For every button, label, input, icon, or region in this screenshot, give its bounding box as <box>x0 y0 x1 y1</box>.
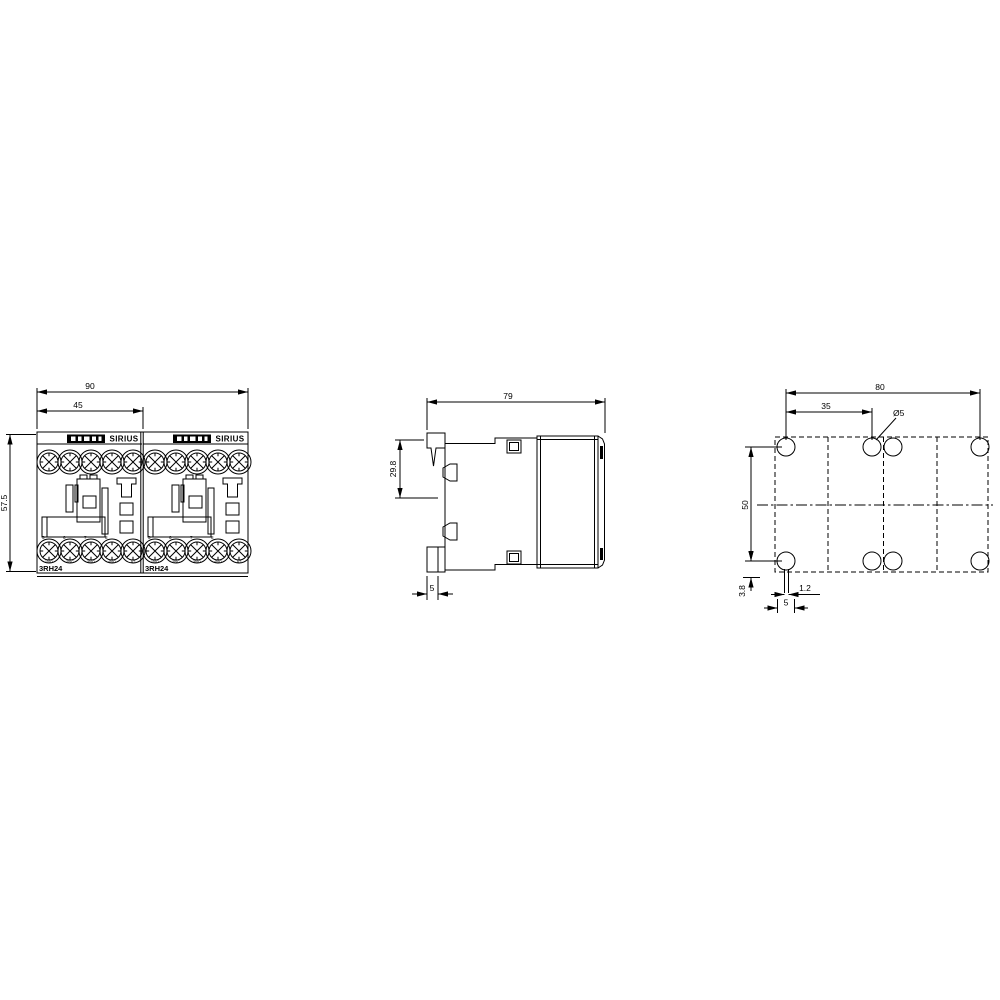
side-dimensions: 79 29.8 5 <box>388 391 605 600</box>
brand-label: SIRIUS <box>215 435 244 444</box>
position-mark: 8 <box>105 535 108 540</box>
terminal-label: 4NO <box>214 559 222 564</box>
dim-edge-offset: 3.8 <box>737 585 747 597</box>
position-mark: 8 <box>211 535 214 540</box>
terminal-label: 3NO <box>193 559 201 564</box>
drilling-pattern-view: 80 35 Ø5 50 3.8 1.2 5 <box>737 382 993 613</box>
drill-dimensions: 80 35 Ø5 50 3.8 1.2 5 <box>737 382 980 613</box>
terminal-label: 3NO <box>87 559 95 564</box>
dim-hole-pitch: 35 <box>821 401 831 411</box>
terminal-label: 2NC <box>172 559 180 564</box>
dim-hole-span-height: 50 <box>740 500 750 510</box>
dim-overall-width: 90 <box>85 381 95 391</box>
technical-drawing: SIRIUS 3RH24 1NO 2NC 3NO 4NO A2 5 6 7 8 … <box>0 0 1000 1000</box>
dim-overall-height: 57.5 <box>0 494 9 511</box>
dim-foot-width: 5 <box>430 583 435 593</box>
terminal-label: 2NC <box>66 559 74 564</box>
terminal-label: 4NO <box>108 559 116 564</box>
mounting-slot <box>785 569 789 593</box>
model-label: 3RH24 <box>145 564 169 573</box>
model-label: 3RH24 <box>39 564 63 573</box>
side-body-outline <box>427 433 605 572</box>
dimension-drawing-canvas: SIRIUS 3RH24 1NO 2NC 3NO 4NO A2 5 6 7 8 … <box>0 0 1000 1000</box>
dim-slot-span: 5 <box>784 598 789 608</box>
dim-rail-height: 29.8 <box>388 460 398 477</box>
terminal-label: A2 <box>237 559 243 564</box>
brand-label: SIRIUS <box>109 435 138 444</box>
terminal-label: 1NO <box>151 559 159 564</box>
dim-depth: 79 <box>503 391 513 401</box>
dim-hole-diameter: Ø5 <box>893 408 905 418</box>
terminal-label: A2 <box>131 559 137 564</box>
dim-hole-span-width: 80 <box>875 382 885 392</box>
module-right: SIRIUS 3RH24 1NO 2NC 3NO 4NO A2 5 6 7 8 <box>143 435 251 574</box>
side-view: 79 29.8 5 <box>388 391 605 600</box>
dim-module-width: 45 <box>73 400 83 410</box>
terminal-label: 1NO <box>45 559 53 564</box>
front-view: SIRIUS 3RH24 1NO 2NC 3NO 4NO A2 5 6 7 8 … <box>0 381 251 577</box>
dim-slot-width: 1.2 <box>799 583 811 593</box>
module-left: SIRIUS 3RH24 1NO 2NC 3NO 4NO A2 5 6 7 8 <box>37 435 145 574</box>
